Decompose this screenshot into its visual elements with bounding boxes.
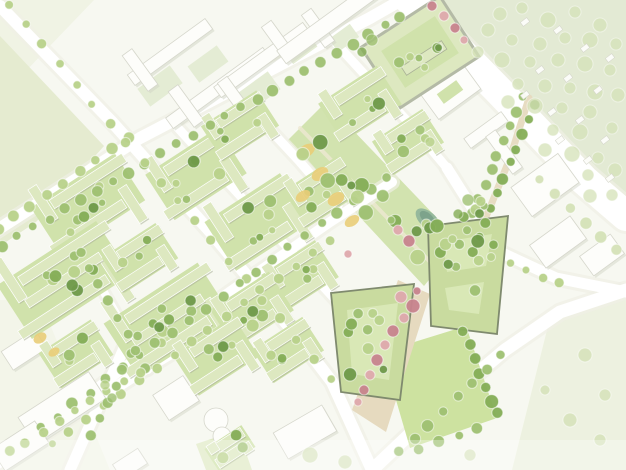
street-tree-icon [88,100,96,108]
street-tree-icon [487,164,498,175]
park-tree-icon [489,240,498,249]
courtyard-tree-icon [66,228,75,237]
street-tree-icon [481,180,492,191]
street-tree-icon [75,165,86,176]
street-tree-icon [266,84,278,96]
street-tree-icon [594,231,606,243]
meadow-tree-icon [516,2,528,14]
cherry-tree-icon [380,340,390,350]
street-tree-icon [202,325,212,335]
street-tree-icon [292,335,301,344]
park-tree-icon [410,249,425,264]
street-tree-icon [457,326,467,336]
courtyard-tree-icon [203,344,214,355]
context-tree-icon [599,389,611,401]
meadow-tree-icon [604,64,616,76]
meadow-tree-icon [572,124,588,140]
courtyard-tree-icon [182,195,190,203]
courtyard-tree-icon [49,270,62,283]
context-tree-icon [415,125,425,135]
meadow-tree-icon [506,34,518,46]
park-tree-icon [379,365,387,373]
street-tree-icon [554,278,564,288]
street-tree-icon [59,203,70,214]
courtyard-tree-icon [277,354,287,364]
meadow-tree-icon [556,102,568,114]
context-tree-icon [540,385,550,395]
street-tree-icon [113,314,122,323]
courtyard-tree-icon [364,95,371,102]
park-tree-icon [347,181,356,190]
street-tree-icon [218,291,229,302]
cherry-tree-icon [371,354,383,366]
street-tree-icon [120,137,130,147]
street-tree-icon [156,178,166,188]
street-tree-icon [273,273,284,284]
street-tree-icon [469,353,481,365]
park-tree-icon [475,209,485,219]
courtyard-tree-icon [98,199,105,206]
street-tree-icon [381,20,390,29]
street-tree-icon [22,20,30,28]
park-tree-icon [320,173,335,188]
street-tree-icon [188,131,198,141]
street-tree-icon [284,75,295,86]
meadow-tree-icon [493,7,507,21]
street-tree-icon [93,279,103,289]
courtyard-tree-icon [185,295,196,306]
street-tree-icon [505,121,514,130]
street-tree-icon [235,279,244,288]
courtyard-tree-icon [76,332,88,344]
courtyard-tree-icon [187,155,200,168]
park-tree-icon [376,190,389,203]
park-tree-icon [350,190,364,204]
street-tree-icon [73,81,81,89]
meadow-tree-icon [538,143,552,157]
park-tree-icon [362,343,374,355]
meadow-tree-icon [533,37,547,51]
street-tree-icon [496,350,505,359]
courtyard-tree-icon [263,209,274,220]
courtyard-tree-icon [349,119,357,127]
street-tree-icon [496,173,508,185]
street-tree-icon [57,179,68,190]
street-tree-icon [300,231,309,240]
street-tree-icon [37,39,47,49]
street-tree-icon [524,115,533,124]
street-tree-icon [580,217,592,229]
street-tree-icon [167,327,178,338]
context-tree-icon [563,413,577,427]
street-tree-icon [292,262,300,270]
street-tree-icon [56,60,64,68]
street-tree-icon [240,298,248,306]
cherry-tree-icon [460,36,468,44]
park-tree-icon [374,315,385,326]
courtyard-tree-icon [247,306,259,318]
street-tree-icon [206,235,216,245]
street-tree-icon [12,231,21,240]
meadow-tree-icon [527,98,543,114]
park-tree-icon [345,318,357,330]
courtyard-tree-icon [246,319,259,332]
street-tree-icon [315,57,326,68]
meadow-tree-icon [501,95,515,109]
park-tree-icon [469,285,480,296]
street-tree-icon [84,264,93,273]
park-tree-icon [358,205,373,220]
meadow-tree-icon [582,169,594,181]
street-tree-icon [490,151,501,162]
street-tree-icon [224,257,233,266]
street-tree-icon [171,139,181,149]
courtyard-tree-icon [397,145,409,157]
street-tree-icon [122,167,134,179]
street-tree-icon [565,203,575,213]
street-tree-icon [63,427,73,437]
street-tree-icon [522,266,530,274]
park-tree-icon [435,44,443,52]
street-tree-icon [0,241,8,253]
courtyard-tree-icon [213,352,223,362]
cherry-tree-icon [387,325,399,337]
park-tree-icon [448,235,457,244]
street-tree-icon [471,423,482,434]
site-plan-figure [0,0,626,470]
courtyard-tree-icon [217,341,229,353]
street-tree-icon [45,215,54,224]
street-tree-icon [255,285,265,295]
courtyard-tree-icon [269,227,276,234]
courtyard-tree-icon [157,304,166,313]
street-tree-icon [102,295,113,306]
park-tree-icon [430,219,444,233]
meadow-tree-icon [593,18,607,32]
cherry-tree-icon [439,11,449,21]
meadow-tree-icon [540,12,556,28]
cherry-tree-icon [359,385,369,395]
cherry-tree-icon [450,23,460,33]
meadow-tree-icon [606,122,618,134]
park-tree-icon [335,174,347,186]
courtyard-tree-icon [397,134,406,143]
context-tree-icon [357,47,367,57]
park-tree-icon [473,255,484,266]
street-tree-icon [275,313,286,324]
park-tree-icon [406,53,414,61]
street-tree-icon [493,188,502,197]
courtyard-tree-icon [78,211,90,223]
street-tree-icon [331,47,342,58]
street-tree-icon [152,363,162,373]
street-tree-icon [130,345,140,355]
street-tree-icon [492,407,503,418]
meadow-tree-icon [610,38,622,50]
street-tree-icon [283,242,292,251]
street-tree-icon [506,157,515,166]
courtyard-tree-icon [186,306,197,317]
park-tree-icon [411,226,422,237]
street-tree-icon [75,194,87,206]
park-tree-icon [443,259,453,269]
meadow-tree-icon [564,82,576,94]
street-tree-icon [190,216,200,226]
courtyard-tree-icon [266,350,276,360]
cherry-tree-icon [413,287,421,295]
courtyard-tree-icon [172,179,180,187]
street-tree-icon [95,414,104,423]
street-tree-icon [221,311,232,322]
cherry-tree-icon [365,370,375,380]
street-tree-icon [539,273,548,282]
courtyard-tree-icon [68,266,81,279]
meadow-tree-icon [559,32,571,44]
courtyard-tree-icon [88,202,99,213]
meadow-tree-icon [481,23,495,37]
courtyard-tree-icon [256,233,264,241]
street-tree-icon [28,222,37,231]
street-tree-icon [480,218,491,229]
street-tree-icon [109,177,118,186]
street-tree-icon [171,351,180,360]
street-tree-icon [439,407,448,416]
street-tree-icon [39,427,49,437]
courtyard-tree-icon [230,429,242,441]
street-tree-icon [91,186,103,198]
street-tree-icon [184,316,194,326]
meadow-tree-icon [524,56,536,68]
street-tree-icon [485,395,499,409]
street-tree-icon [5,0,14,9]
street-tree-icon [200,304,212,316]
courtyard-tree-icon [217,128,224,135]
context-tree-icon [366,34,378,46]
courtyard-tree-icon [63,349,75,361]
street-tree-icon [105,119,115,129]
courtyard-tree-icon [135,252,143,260]
street-tree-icon [325,236,335,246]
meadow-tree-icon [569,6,581,18]
courtyard-tree-icon [117,257,127,267]
park-tree-icon [343,368,356,381]
park-tree-icon [353,308,363,318]
street-tree-icon [76,247,86,257]
street-tree-icon [611,244,622,255]
meadow-tree-icon [611,88,625,102]
street-tree-icon [308,248,317,257]
street-tree-icon [535,175,544,184]
cherry-tree-icon [399,313,409,323]
street-tree-icon [516,128,528,140]
park-tree-icon [415,54,423,62]
cherry-tree-icon [403,235,415,247]
meadow-tree-icon [583,105,597,119]
context-tree-icon [462,194,474,206]
courtyard-tree-icon [302,265,310,273]
street-tree-icon [106,142,118,154]
street-tree-icon [467,378,477,388]
street-tree-icon [482,364,493,375]
street-tree-icon [506,259,514,267]
street-tree-icon [120,377,129,386]
park-tree-icon [471,234,485,248]
meadow-tree-icon [606,189,618,201]
courtyard-tree-icon [306,202,317,213]
meadow-tree-icon [592,152,604,164]
courtyard-tree-icon [142,235,151,244]
street-tree-icon [140,158,150,168]
context-tree-icon [425,137,435,147]
park-tree-icon [421,63,429,71]
meadow-tree-icon [538,79,552,93]
context-tree-icon [100,380,110,390]
meadow-tree-icon [564,146,580,162]
cherry-tree-icon [406,299,420,313]
cherry-tree-icon [393,225,403,235]
street-tree-icon [55,416,65,426]
meadow-tree-icon [472,46,484,58]
park-tree-icon [476,196,486,206]
street-tree-icon [267,254,277,264]
street-tree-icon [220,111,229,120]
street-tree-icon [549,188,560,199]
street-tree-icon [8,210,20,222]
park-tree-icon [387,216,395,224]
cherry-tree-icon [427,1,437,11]
street-tree-icon [453,391,463,401]
street-tree-icon [511,145,521,155]
cherry-tree-icon [344,250,352,258]
street-tree-icon [299,66,309,76]
street-tree-icon [186,336,197,347]
street-tree-icon [394,11,405,22]
meadow-tree-icon [547,124,559,136]
street-tree-icon [136,368,146,378]
street-tree-icon [465,339,476,350]
park-tree-icon [313,134,328,149]
street-tree-icon [421,420,433,432]
street-tree-icon [252,94,264,106]
cherry-tree-icon [395,291,407,303]
masterplan-svg [0,0,626,470]
courtyard-tree-icon [242,202,254,214]
street-tree-icon [85,430,96,441]
courtyard-tree-icon [154,322,165,333]
courtyard-tree-icon [221,135,229,143]
park-tree-icon [296,147,309,160]
park-tree-icon [394,57,405,68]
street-tree-icon [382,173,391,182]
street-tree-icon [463,226,472,235]
meadow-tree-icon [494,52,510,68]
street-tree-icon [81,414,92,425]
park-tree-icon [362,325,372,335]
courtyard-tree-icon [213,168,225,180]
street-tree-icon [133,331,142,340]
street-tree-icon [71,406,79,414]
street-tree-icon [455,431,464,440]
street-tree-icon [251,267,261,277]
street-tree-icon [499,135,509,145]
street-tree-icon [91,156,100,165]
courtyard-tree-icon [303,274,312,283]
meadow-tree-icon [583,189,597,203]
courtyard-tree-icon [66,279,78,291]
street-tree-icon [174,197,182,205]
courtyard-tree-icon [372,97,385,110]
street-tree-icon [155,148,166,159]
street-tree-icon [205,120,215,130]
courtyard-tree-icon [253,118,262,127]
street-tree-icon [85,396,95,406]
street-tree-icon [257,296,267,306]
street-tree-icon [117,364,128,375]
street-tree-icon [331,207,343,219]
street-tree-icon [123,329,133,339]
bottom-fade [0,440,626,470]
street-tree-icon [327,375,335,383]
context-tree-icon [107,393,117,403]
street-tree-icon [309,354,319,364]
courtyard-tree-icon [163,314,174,325]
street-tree-icon [318,219,327,228]
cherry-tree-icon [354,398,362,406]
street-tree-icon [236,102,245,111]
street-tree-icon [487,253,496,262]
street-tree-icon [42,190,53,201]
street-tree-icon [23,201,35,213]
street-tree-icon [149,337,160,348]
meadow-tree-icon [512,78,524,90]
context-tree-icon [453,209,463,219]
context-tree-icon [578,348,592,362]
meadow-tree-icon [577,56,593,72]
meadow-tree-icon [551,53,565,67]
courtyard-tree-icon [264,195,277,208]
street-tree-icon [481,382,491,392]
